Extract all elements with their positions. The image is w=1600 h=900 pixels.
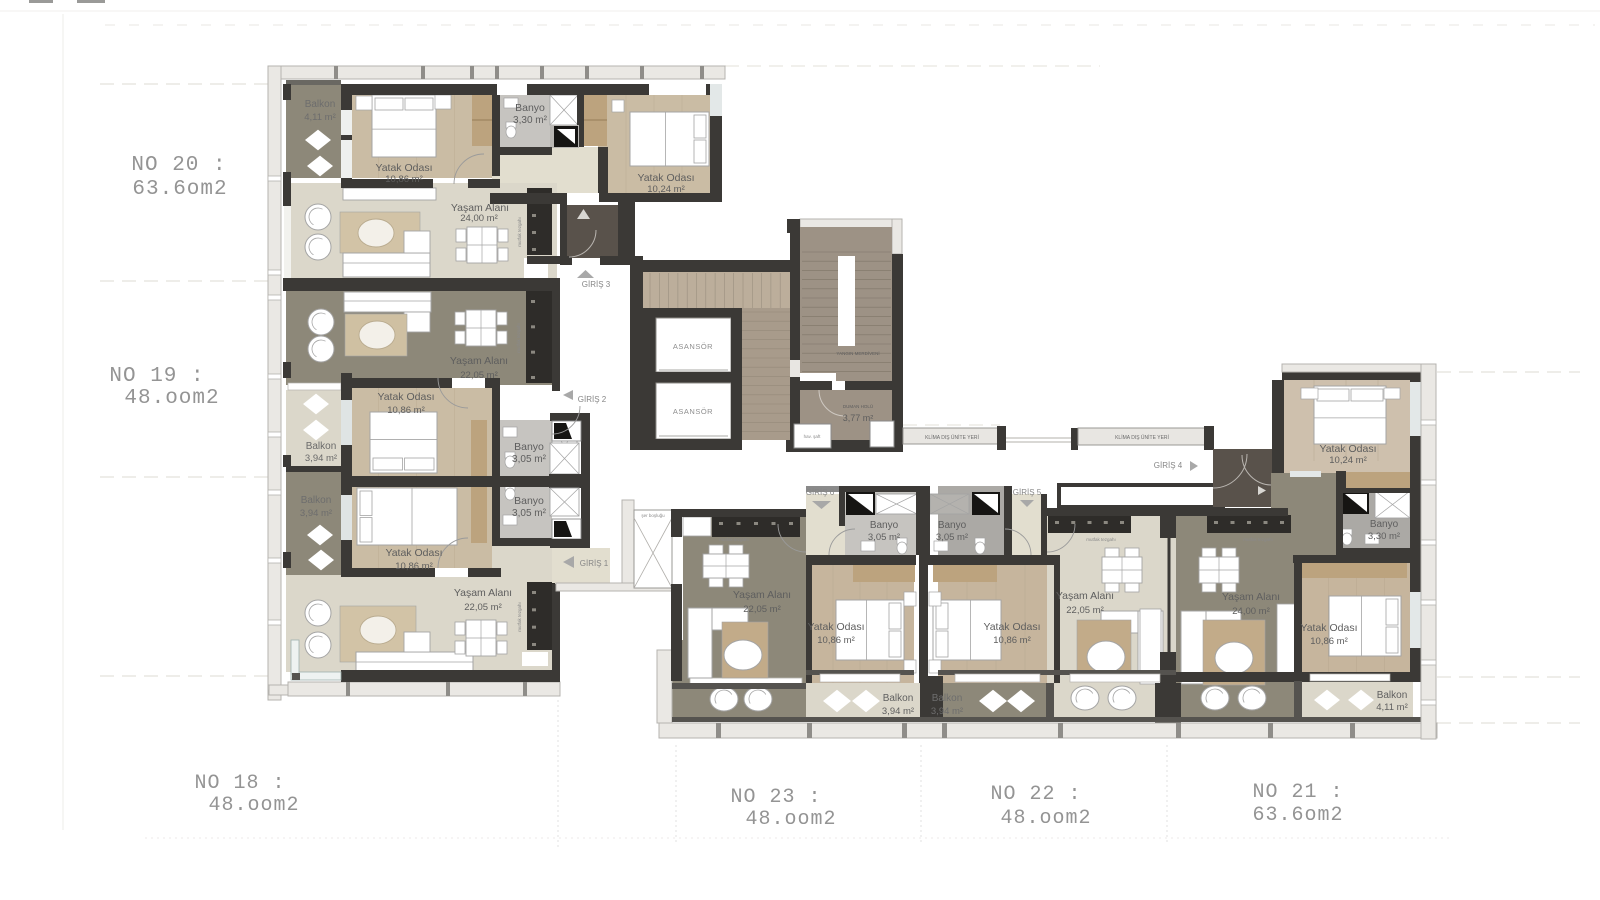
svg-text:Yaşam Alanı: Yaşam Alanı [450,355,508,367]
svg-text:Yatak Odası: Yatak Odası [807,621,864,633]
svg-text:10,86 m²: 10,86 m² [993,635,1031,646]
svg-text:NO 21 :: NO 21 : [1252,781,1343,804]
svg-text:48.oom2: 48.oom2 [124,387,219,410]
svg-text:Yaşam Alanı: Yaşam Alanı [733,589,791,601]
svg-text:YANGIN MERDİVENİ: YANGIN MERDİVENİ [836,350,879,356]
svg-text:GİRİŞ 4: GİRİŞ 4 [1154,461,1183,470]
svg-text:mutfak tezgahı: mutfak tezgahı [517,602,522,632]
svg-text:Yatak Odası: Yatak Odası [983,621,1040,633]
svg-text:Yaşam Alanı: Yaşam Alanı [454,587,512,599]
svg-text:GİRİŞ 2: GİRİŞ 2 [578,395,607,404]
svg-text:mutfak tezgahı: mutfak tezgahı [517,217,522,247]
svg-text:3,05 m²: 3,05 m² [868,532,900,543]
svg-text:3,05 m²: 3,05 m² [936,532,968,543]
svg-text:4,11 m²: 4,11 m² [1376,702,1408,713]
svg-text:22,05 m²: 22,05 m² [460,370,498,381]
svg-text:10,24 m²: 10,24 m² [1329,455,1367,466]
svg-text:şer boşluğu: şer boşluğu [641,513,665,518]
svg-text:NO 23 :: NO 23 : [730,786,821,809]
svg-text:Yatak Odası: Yatak Odası [385,547,442,559]
svg-text:Banyo: Banyo [1370,519,1399,530]
svg-text:Balkon: Balkon [306,441,337,452]
svg-text:NO 19 :: NO 19 : [109,365,204,388]
svg-text:mutfak tezgahı: mutfak tezgahı [516,323,521,353]
svg-text:Yatak Odası: Yatak Odası [1300,622,1357,634]
svg-text:3,30 m²: 3,30 m² [1368,531,1400,542]
svg-text:GİRİŞ 5: GİRİŞ 5 [1013,488,1042,497]
svg-text:mutfak tezgahı: mutfak tezgahı [1243,537,1273,542]
svg-text:3,77 m²: 3,77 m² [843,413,874,423]
svg-text:10,86 m²: 10,86 m² [1310,636,1348,647]
svg-text:NO 18 :: NO 18 : [194,772,285,795]
svg-text:3,05 m²: 3,05 m² [512,454,547,465]
svg-text:10,24 m²: 10,24 m² [647,184,685,195]
svg-text:3,94 m²: 3,94 m² [931,706,963,717]
svg-text:63.6om2: 63.6om2 [132,178,227,201]
svg-text:GİRİŞ 1: GİRİŞ 1 [580,559,609,568]
svg-text:hav. şaft: hav. şaft [804,434,821,439]
svg-text:Balkon: Balkon [883,693,914,704]
svg-text:3,94 m²: 3,94 m² [882,706,914,717]
svg-text:Banyo: Banyo [870,520,899,531]
svg-text:10,86 m²: 10,86 m² [817,635,855,646]
svg-text:3,05 m²: 3,05 m² [512,508,547,519]
svg-text:DUMAN HOLÜ: DUMAN HOLÜ [843,403,873,409]
svg-text:KLİMA DIŞ ÜNİTE YERİ: KLİMA DIŞ ÜNİTE YERİ [925,434,979,441]
svg-text:Balkon: Balkon [301,495,332,506]
svg-text:3,94 m²: 3,94 m² [300,508,332,519]
svg-text:Yaşam Alanı: Yaşam Alanı [1056,590,1114,602]
svg-text:Banyo: Banyo [514,495,544,507]
svg-text:24,00 m²: 24,00 m² [1232,606,1270,617]
svg-text:Balkon: Balkon [1377,690,1408,701]
svg-text:GİRİŞ 6: GİRİŞ 6 [806,488,835,497]
svg-text:Yatak Odası: Yatak Odası [1319,443,1376,455]
svg-text:Yatak Odası: Yatak Odası [377,391,434,403]
svg-text:3,94 m²: 3,94 m² [305,453,337,464]
svg-text:ASANSÖR: ASANSÖR [673,342,713,351]
svg-text:10,86 m²: 10,86 m² [387,405,425,416]
svg-text:22,05 m²: 22,05 m² [1066,605,1104,616]
svg-text:24,00 m²: 24,00 m² [460,213,498,224]
svg-text:Yaşam Alanı: Yaşam Alanı [1222,591,1280,603]
svg-text:Banyo: Banyo [938,520,967,531]
svg-text:KLİMA DIŞ ÜNİTE YERİ: KLİMA DIŞ ÜNİTE YERİ [1115,434,1169,441]
svg-text:22,05 m²: 22,05 m² [464,602,502,613]
svg-text:Banyo: Banyo [514,441,544,453]
svg-text:Yatak Odası: Yatak Odası [637,172,694,184]
svg-text:10,86 m²: 10,86 m² [395,561,433,572]
svg-text:48.oom2: 48.oom2 [1000,807,1091,830]
svg-text:mutfak tezgahı: mutfak tezgahı [1086,537,1116,542]
svg-text:Yatak Odası: Yatak Odası [375,162,432,174]
svg-text:10,86 m²: 10,86 m² [385,174,423,185]
svg-text:NO 20 :: NO 20 : [131,154,226,177]
svg-text:48.oom2: 48.oom2 [745,808,836,831]
svg-text:Balkon: Balkon [305,99,336,110]
svg-text:4,11 m²: 4,11 m² [304,112,336,123]
svg-text:NO 22 :: NO 22 : [990,783,1081,806]
svg-text:GİRİŞ 3: GİRİŞ 3 [582,280,611,289]
svg-text:63.6om2: 63.6om2 [1252,804,1343,827]
svg-text:48.oom2: 48.oom2 [208,794,299,817]
svg-text:mutfak tezgahı: mutfak tezgahı [719,537,749,542]
svg-text:Banyo: Banyo [515,102,545,114]
svg-text:ASANSÖR: ASANSÖR [673,407,713,416]
svg-text:3,30 m²: 3,30 m² [513,115,548,126]
svg-text:Balkon: Balkon [932,693,963,704]
svg-text:22,05 m²: 22,05 m² [743,604,781,615]
